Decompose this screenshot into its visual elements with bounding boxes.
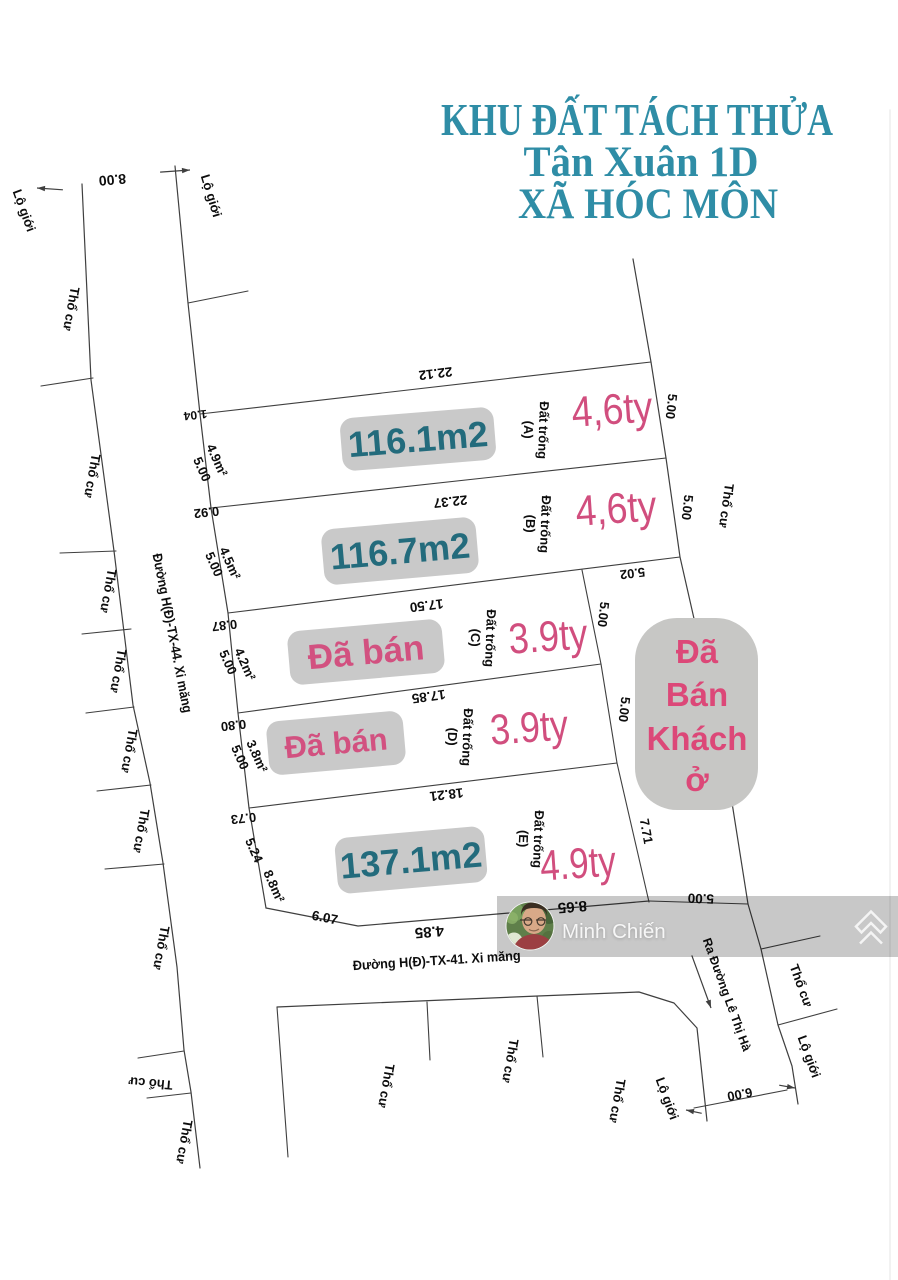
svg-text:0.80: 0.80 [220, 717, 247, 735]
svg-text:(C): (C) [468, 628, 484, 647]
svg-text:Tân Xuân 1D: Tân Xuân 1D [524, 139, 759, 186]
svg-text:5.02: 5.02 [619, 564, 646, 582]
svg-text:XÃ HÓC MÔN: XÃ HÓC MÔN [518, 180, 778, 228]
svg-text:Đất trống: Đất trống [537, 495, 554, 553]
svg-text:(B): (B) [523, 514, 539, 533]
svg-text:Đất trống: Đất trống [459, 708, 476, 766]
svg-text:(E): (E) [516, 830, 532, 848]
svg-text:5.00: 5.00 [616, 696, 634, 723]
svg-text:0.87: 0.87 [211, 617, 238, 635]
svg-text:4,6ty: 4,6ty [574, 482, 659, 536]
svg-text:4.85: 4.85 [414, 922, 445, 941]
svg-text:Đất trống: Đất trống [482, 609, 499, 667]
svg-text:3.9ty: 3.9ty [507, 610, 590, 663]
svg-text:4.9ty: 4.9ty [538, 837, 618, 890]
svg-text:Đất trống: Đất trống [535, 401, 552, 459]
svg-text:1.04: 1.04 [183, 407, 208, 423]
svg-text:Bán: Bán [666, 676, 728, 713]
svg-text:3.9ty: 3.9ty [488, 701, 570, 754]
svg-text:0.92: 0.92 [193, 504, 220, 522]
svg-text:ở: ở [685, 761, 709, 798]
svg-text:Đã: Đã [676, 633, 719, 670]
svg-text:5.00: 5.00 [663, 393, 681, 420]
svg-text:(D): (D) [445, 727, 461, 746]
svg-text:4,6ty: 4,6ty [570, 383, 655, 437]
svg-text:Minh Chiến: Minh Chiến [562, 920, 666, 943]
svg-text:Khách: Khách [647, 720, 748, 757]
svg-text:5.00: 5.00 [595, 601, 613, 628]
svg-text:5.00: 5.00 [679, 494, 697, 521]
svg-text:0.73: 0.73 [230, 810, 257, 828]
svg-text:8.00: 8.00 [98, 171, 127, 189]
svg-text:KHU ĐẤT TÁCH THỬA: KHU ĐẤT TÁCH THỬA [441, 93, 833, 145]
svg-text:(A): (A) [521, 420, 537, 439]
